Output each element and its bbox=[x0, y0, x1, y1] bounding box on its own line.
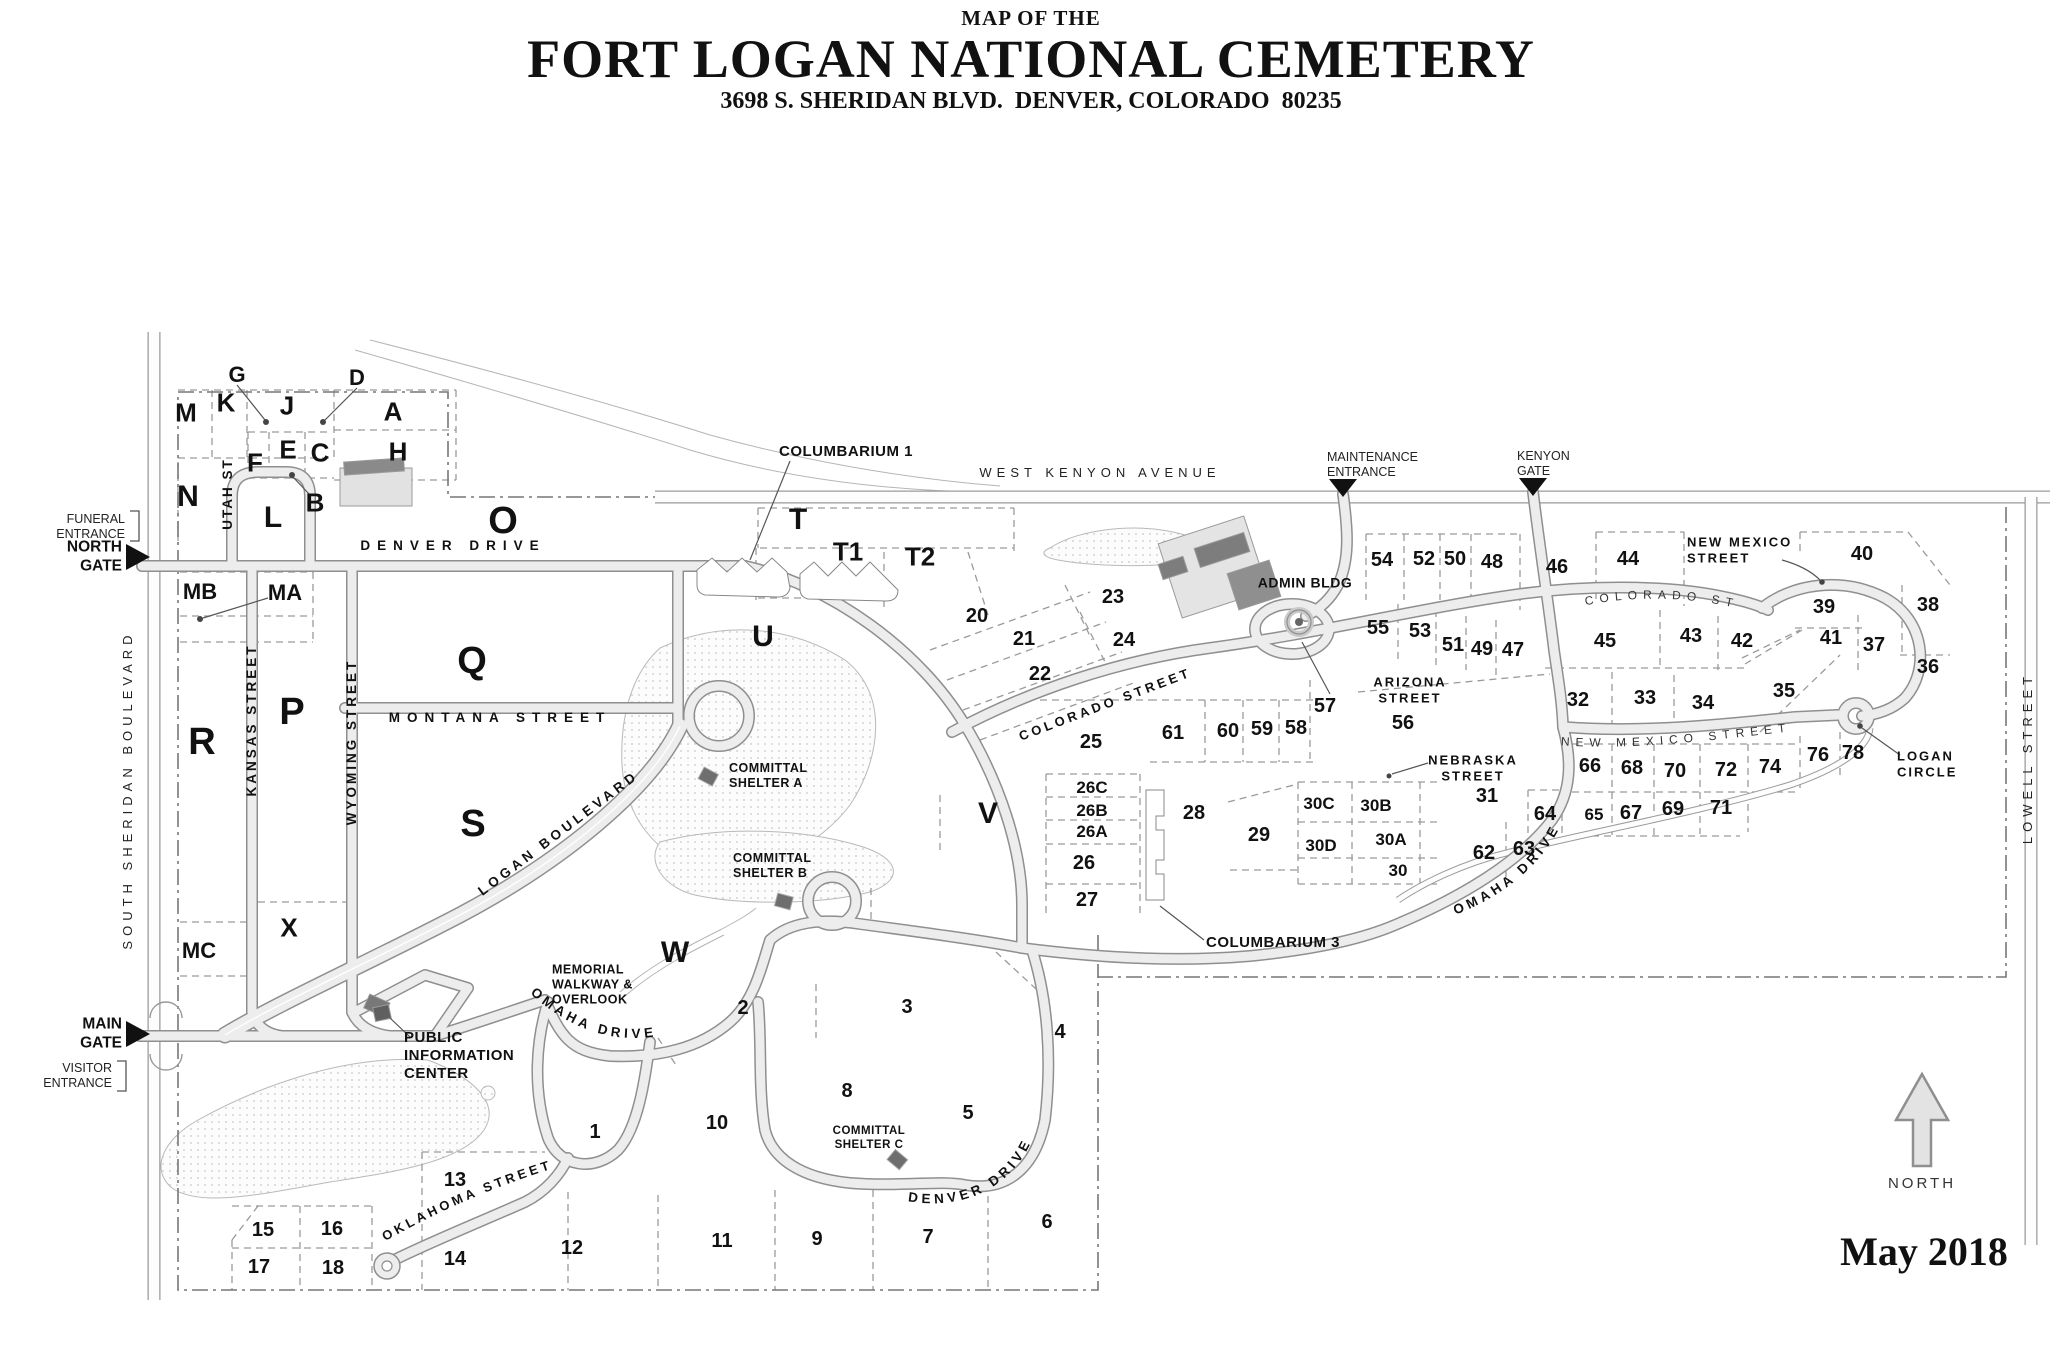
poi-label-committal-shelter-a: COMMITTAL SHELTER A bbox=[729, 761, 808, 791]
section-label-66: 66 bbox=[1579, 754, 1601, 778]
section-label-E: E bbox=[279, 434, 296, 465]
section-label-T1: T1 bbox=[833, 536, 863, 567]
section-label-68: 68 bbox=[1621, 756, 1643, 780]
section-label-J: J bbox=[280, 390, 294, 421]
section-label-B: B bbox=[306, 487, 325, 518]
section-label-30: 30 bbox=[1389, 861, 1408, 881]
section-label-S: S bbox=[460, 802, 485, 848]
street-label-lowell: LOWELL STREET bbox=[2020, 672, 2036, 844]
section-label-G: G bbox=[228, 362, 245, 388]
section-label-36: 36 bbox=[1917, 655, 1939, 679]
section-label-58: 58 bbox=[1285, 716, 1307, 740]
section-label-M: M bbox=[175, 397, 197, 428]
section-label-45: 45 bbox=[1594, 629, 1616, 653]
section-label-20: 20 bbox=[966, 604, 988, 628]
north-label: NORTH bbox=[1888, 1175, 1956, 1193]
cemetery-map-page: COLORADO ST NEW MEXICO STREET OMAHA DRIV… bbox=[0, 0, 2062, 1346]
poi-label-admin-bldg: ADMIN BLDG bbox=[1258, 575, 1352, 592]
section-label-U: U bbox=[752, 619, 774, 655]
street-label-logan-blvd: LOGAN BOULEVARD bbox=[475, 768, 641, 899]
poi-label-memorial-walkway: MEMORIAL WALKWAY & OVERLOOK bbox=[552, 963, 633, 1008]
section-label-44: 44 bbox=[1617, 547, 1639, 571]
section-label-42: 42 bbox=[1731, 629, 1753, 653]
section-label-72: 72 bbox=[1715, 758, 1737, 782]
entrance-label-north-gate: NORTH GATE bbox=[67, 538, 122, 575]
street-label-arizona: ARIZONA STREET bbox=[1373, 674, 1446, 705]
section-label-T: T bbox=[789, 502, 807, 538]
section-label-V: V bbox=[978, 796, 998, 832]
section-label-52: 52 bbox=[1413, 547, 1435, 571]
section-label-O: O bbox=[488, 499, 518, 545]
section-label-41: 41 bbox=[1820, 626, 1842, 650]
entrance-label-kenyon-gate: KENYON GATE bbox=[1517, 449, 1570, 479]
section-label-2: 2 bbox=[737, 996, 748, 1020]
section-label-MA: MA bbox=[268, 580, 302, 606]
section-label-61: 61 bbox=[1162, 721, 1184, 745]
section-label-39: 39 bbox=[1813, 595, 1835, 619]
section-label-53: 53 bbox=[1409, 619, 1431, 643]
section-label-70: 70 bbox=[1664, 759, 1686, 783]
section-label-A: A bbox=[384, 396, 403, 427]
section-label-26C: 26C bbox=[1076, 778, 1107, 798]
section-label-37: 37 bbox=[1863, 633, 1885, 657]
section-label-57: 57 bbox=[1314, 694, 1336, 718]
section-label-X: X bbox=[280, 912, 297, 943]
section-label-55: 55 bbox=[1367, 616, 1389, 640]
section-label-C: C bbox=[311, 437, 330, 468]
section-label-17: 17 bbox=[248, 1255, 270, 1279]
section-label-1: 1 bbox=[589, 1120, 600, 1144]
street-label-utah: UTAH ST bbox=[220, 458, 236, 530]
section-label-50: 50 bbox=[1444, 547, 1466, 571]
section-label-30A: 30A bbox=[1375, 830, 1406, 850]
section-label-40: 40 bbox=[1851, 542, 1873, 566]
section-label-56: 56 bbox=[1392, 711, 1414, 735]
small-pond bbox=[481, 1086, 495, 1100]
section-label-69: 69 bbox=[1662, 797, 1684, 821]
map-header: MAP OF THE FORT LOGAN NATIONAL CEMETERY … bbox=[0, 6, 2062, 115]
street-label-denver-drive: DENVER DRIVE bbox=[360, 538, 545, 554]
section-label-28: 28 bbox=[1183, 801, 1205, 825]
curved-street-labels: COLORADO ST NEW MEXICO STREET OMAHA DRIV… bbox=[379, 588, 1792, 1244]
section-label-48: 48 bbox=[1481, 550, 1503, 574]
poi-label-committal-shelter-c: COMMITTAL SHELTER C bbox=[833, 1125, 906, 1153]
section-label-F: F bbox=[247, 447, 263, 478]
section-label-3: 3 bbox=[901, 995, 912, 1019]
section-label-31: 31 bbox=[1476, 784, 1498, 808]
section-label-49: 49 bbox=[1471, 637, 1493, 661]
section-label-78: 78 bbox=[1842, 741, 1864, 765]
section-label-67: 67 bbox=[1620, 801, 1642, 825]
section-label-10: 10 bbox=[706, 1111, 728, 1135]
section-label-23: 23 bbox=[1102, 585, 1124, 609]
section-label-4: 4 bbox=[1054, 1020, 1065, 1044]
section-label-H: H bbox=[389, 436, 408, 467]
section-label-21: 21 bbox=[1013, 627, 1035, 651]
street-label-kansas: KANSAS STREET bbox=[244, 643, 260, 796]
poi-label-columbarium-3: COLUMBARIUM 3 bbox=[1206, 934, 1340, 952]
section-label-11: 11 bbox=[711, 1229, 732, 1253]
visitor-entrance-bracket bbox=[117, 1061, 126, 1091]
section-label-47: 47 bbox=[1502, 638, 1524, 662]
section-label-30D: 30D bbox=[1305, 836, 1336, 856]
entrance-label-main-gate: MAIN GATE bbox=[80, 1015, 122, 1052]
section-label-P: P bbox=[279, 690, 304, 736]
section-label-54: 54 bbox=[1371, 548, 1393, 572]
section-label-34: 34 bbox=[1692, 691, 1714, 715]
section-label-46: 46 bbox=[1546, 555, 1568, 579]
section-label-59: 59 bbox=[1251, 717, 1273, 741]
entrance-label-maintenance: MAINTENANCE ENTRANCE bbox=[1327, 450, 1418, 480]
section-label-30B: 30B bbox=[1360, 796, 1391, 816]
map-title: FORT LOGAN NATIONAL CEMETERY bbox=[0, 31, 2062, 88]
section-label-18: 18 bbox=[322, 1256, 344, 1280]
section-label-33: 33 bbox=[1634, 686, 1656, 710]
street-label-wyoming: WYOMING STREET bbox=[344, 659, 360, 826]
section-label-29: 29 bbox=[1248, 823, 1270, 847]
poi-label-info-center: PUBLIC INFORMATION CENTER bbox=[404, 1029, 514, 1083]
section-label-8: 8 bbox=[841, 1079, 852, 1103]
section-label-N: N bbox=[177, 479, 199, 515]
street-label-montana: MONTANA STREET bbox=[389, 710, 612, 726]
street-label-sheridan: SOUTH SHERIDAN BOULEVARD bbox=[120, 630, 136, 949]
section-label-7: 7 bbox=[922, 1225, 933, 1249]
section-label-71: 71 bbox=[1710, 796, 1732, 820]
section-label-9: 9 bbox=[811, 1227, 822, 1251]
section-label-60: 60 bbox=[1217, 719, 1239, 743]
entrance-label-visitor: VISITOR ENTRANCE bbox=[43, 1061, 112, 1091]
section-label-65: 65 bbox=[1585, 805, 1604, 825]
section-label-30C: 30C bbox=[1303, 794, 1334, 814]
section-label-15: 15 bbox=[252, 1218, 274, 1242]
svg-text:LOGAN BOULEVARD: LOGAN BOULEVARD bbox=[475, 768, 641, 899]
section-label-14: 14 bbox=[444, 1247, 466, 1271]
section-label-74: 74 bbox=[1759, 755, 1781, 779]
section-label-5: 5 bbox=[962, 1101, 973, 1125]
poi-label-logan-circle: LOGAN CIRCLE bbox=[1897, 748, 1957, 779]
section-label-W: W bbox=[661, 935, 689, 971]
street-label-west-kenyon: WEST KENYON AVENUE bbox=[979, 465, 1220, 481]
section-label-T2: T2 bbox=[905, 541, 935, 572]
section-label-38: 38 bbox=[1917, 593, 1939, 617]
section-label-32: 32 bbox=[1567, 688, 1589, 712]
section-label-26B: 26B bbox=[1076, 801, 1107, 821]
section-label-6: 6 bbox=[1041, 1210, 1052, 1234]
section-label-26A: 26A bbox=[1076, 822, 1107, 842]
section-label-22: 22 bbox=[1029, 662, 1051, 686]
section-label-43: 43 bbox=[1680, 624, 1702, 648]
section-label-MB: MB bbox=[183, 579, 217, 605]
section-label-12: 12 bbox=[561, 1236, 583, 1260]
section-label-64: 64 bbox=[1534, 802, 1556, 826]
section-label-27: 27 bbox=[1076, 888, 1098, 912]
section-label-25: 25 bbox=[1080, 730, 1102, 754]
section-label-R: R bbox=[188, 720, 215, 766]
section-label-26: 26 bbox=[1073, 851, 1095, 875]
section-label-63: 63 bbox=[1513, 837, 1535, 861]
funeral-entrance-bracket bbox=[130, 511, 139, 541]
section-label-L: L bbox=[264, 500, 282, 536]
section-label-D: D bbox=[349, 365, 365, 391]
poi-label-committal-shelter-b: COMMITTAL SHELTER B bbox=[733, 851, 812, 881]
columbarium-3-structure bbox=[1146, 790, 1164, 900]
section-label-51: 51 bbox=[1442, 633, 1464, 657]
map-date: May 2018 bbox=[1840, 1228, 2008, 1276]
section-label-13: 13 bbox=[444, 1168, 466, 1192]
main-gate-arrow bbox=[126, 1021, 150, 1047]
section-label-MC: MC bbox=[182, 938, 216, 964]
poi-label-columbarium-1: COLUMBARIUM 1 bbox=[779, 443, 913, 461]
section-label-76: 76 bbox=[1807, 743, 1829, 767]
north-arrow bbox=[1896, 1074, 1948, 1166]
map-pretitle: MAP OF THE bbox=[0, 6, 2062, 31]
street-label-new-mexico: NEW MEXICO STREET bbox=[1687, 534, 1792, 565]
section-label-K: K bbox=[217, 387, 236, 418]
map-address: 3698 S. SHERIDAN BLVD. DENVER, COLORADO … bbox=[0, 88, 2062, 115]
section-label-16: 16 bbox=[321, 1217, 343, 1241]
section-label-Q: Q bbox=[457, 639, 487, 685]
street-label-nebraska: NEBRASKA STREET bbox=[1428, 752, 1518, 783]
section-label-62: 62 bbox=[1473, 841, 1495, 865]
section-label-35: 35 bbox=[1773, 679, 1795, 703]
section-label-24: 24 bbox=[1113, 628, 1135, 652]
